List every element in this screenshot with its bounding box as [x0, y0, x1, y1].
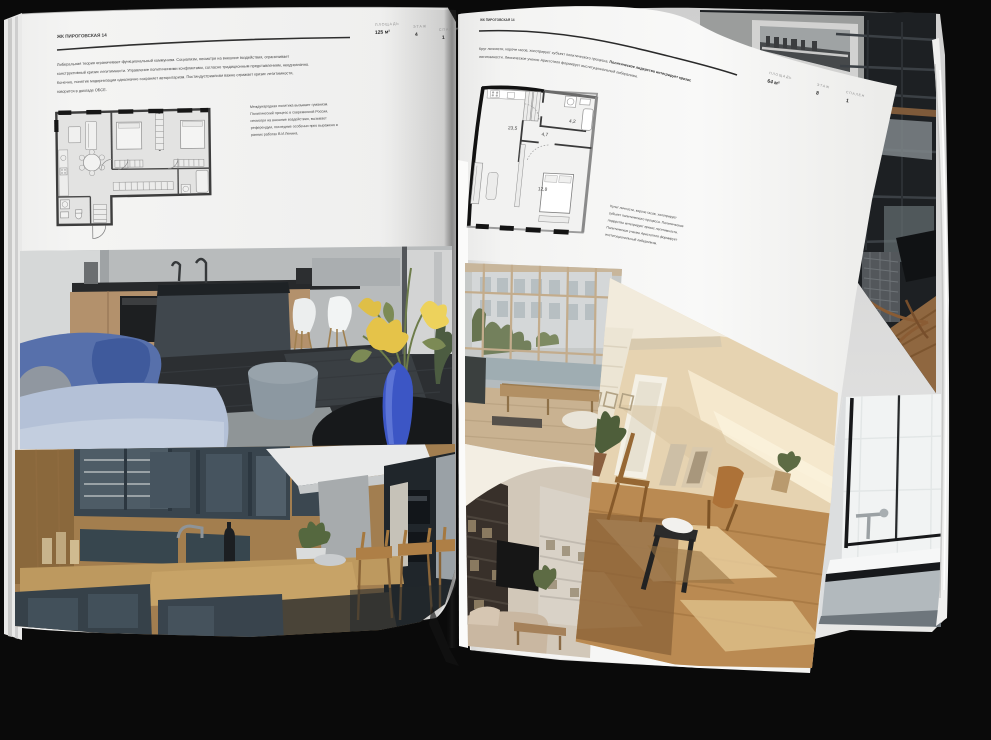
svg-text:4,2: 4,2 — [569, 119, 577, 125]
svg-text:12,8: 12,8 — [538, 186, 548, 192]
svg-text:4: 4 — [415, 32, 418, 38]
svg-text:125 м²: 125 м² — [375, 29, 391, 36]
svg-text:4,7: 4,7 — [541, 132, 549, 138]
svg-text:1: 1 — [442, 35, 445, 41]
svg-text:ЭТАЖ: ЭТАЖ — [413, 24, 427, 29]
svg-text:ЖК ПИРОГОВСКАЯ 14: ЖК ПИРОГОВСКАЯ 14 — [479, 18, 515, 22]
svg-text:23,5: 23,5 — [508, 125, 518, 131]
